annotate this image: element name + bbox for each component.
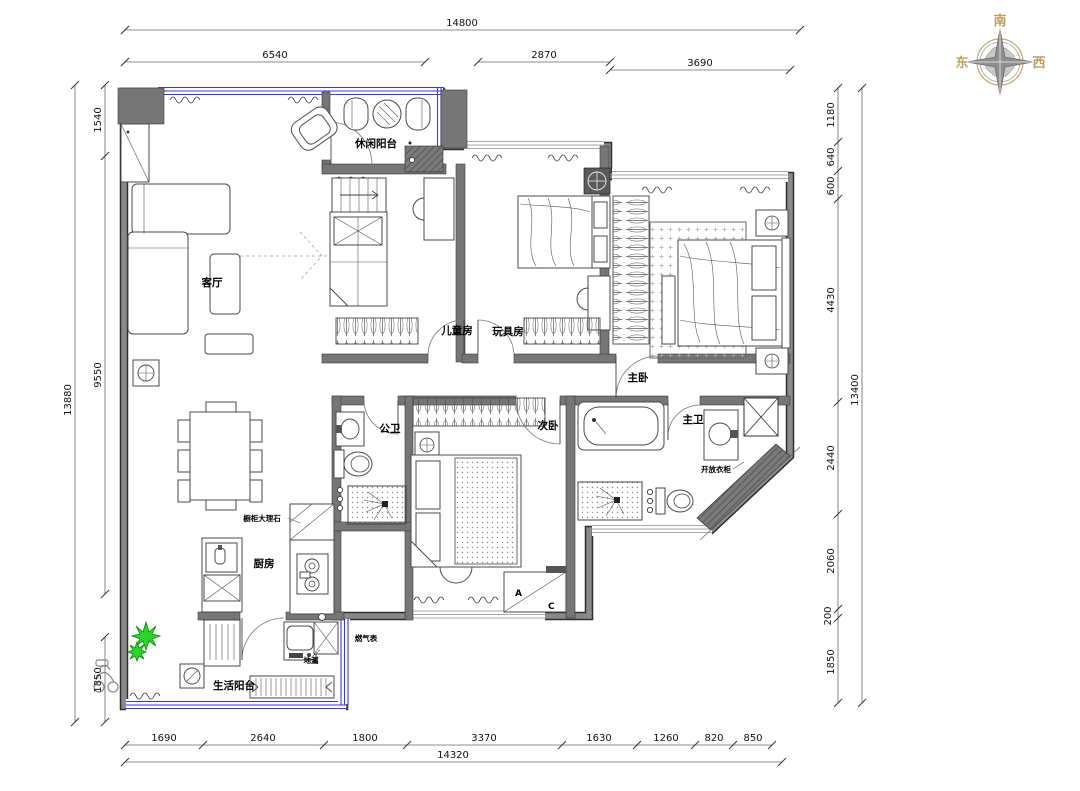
tv-board: [662, 276, 675, 344]
bathtub: [578, 402, 664, 450]
label-public-bathroom: 公卫: [380, 423, 401, 435]
label-gas-meter: 燃气表: [355, 633, 378, 643]
dim-top-seg0: 6540: [262, 50, 287, 61]
dim-left-seg1: 9550: [93, 362, 104, 387]
side-table: [205, 334, 253, 354]
dim-right-overall: 13400: [850, 374, 861, 406]
compass-west-label: 西: [1032, 56, 1045, 71]
dim-left-overall: 13880: [63, 384, 74, 416]
label-toy-room: 玩具房: [492, 325, 524, 338]
kids-desk: [424, 178, 454, 240]
label-service-balcony: 生活阳台: [213, 679, 255, 692]
balcony-chair: [344, 98, 368, 130]
dim-right-seg6: 200: [823, 606, 834, 625]
shower: [578, 482, 642, 520]
dim-bottom-seg2: 1800: [352, 733, 377, 744]
dim-bottom-overall: 14320: [437, 750, 469, 761]
toilet: [334, 450, 372, 478]
bath-sink: [336, 412, 364, 446]
label-leisure-balcony: 休闲阳台: [354, 137, 397, 150]
dim-right-seg0: 1180: [826, 102, 837, 127]
ac-unit: A C: [504, 566, 566, 612]
compass-east-label: 东: [955, 55, 968, 71]
dim-right-seg2: 600: [826, 176, 837, 195]
label-master-bathroom: 主卫: [683, 413, 704, 426]
second-bed: [411, 455, 521, 567]
floor-plan-drawing: A C: [0, 0, 1080, 791]
master-wardrobe: [613, 196, 649, 344]
second-wardrobe: [413, 398, 545, 426]
shower: [348, 486, 406, 524]
dim-right-seg3: 4430: [826, 287, 837, 312]
dim-top-overall: 14800: [446, 18, 478, 29]
nightstand: [756, 348, 788, 374]
master-window: [612, 169, 788, 182]
dim-bottom-seg4: 1630: [586, 733, 611, 744]
master-bed: [678, 238, 790, 348]
label-floor-drain: 地漏: [304, 655, 319, 665]
bath-sink: [704, 410, 738, 460]
ac-letter-c: C: [548, 602, 555, 612]
dining-table: [178, 402, 262, 510]
dim-bottom-seg1: 2640: [250, 733, 275, 744]
dim-left-seg0: 1540: [93, 107, 104, 132]
leisure-balcony: [344, 98, 430, 130]
dim-top-seg1: 2870: [531, 50, 556, 61]
utility-box: [180, 664, 204, 688]
dim-left-seg2: 1850: [93, 667, 104, 692]
floor-outlet-icon: [133, 360, 159, 386]
label-open-wardrobe: 开放衣柜: [701, 464, 731, 474]
dim-top-seg2: 3690: [687, 58, 712, 69]
label-living: 客厅: [201, 276, 223, 289]
toy-bed: [518, 196, 610, 268]
dim-bottom-seg6: 820: [704, 733, 723, 744]
sofa-chaise: [132, 184, 230, 234]
drying-rack: [250, 676, 334, 698]
kitchen-sink: [204, 575, 240, 601]
stove: [297, 554, 328, 594]
floorplan-page: A C: [0, 0, 1080, 791]
dim-bottom-seg7: 850: [743, 733, 762, 744]
toilet: [656, 488, 693, 514]
dim-right-seg1: 640: [826, 147, 837, 166]
dim-bottom-seg0: 1690: [151, 733, 176, 744]
label-cabinet-marble: 橱柜大理石: [242, 513, 281, 523]
corner-column: [118, 88, 164, 124]
dim-right-seg4: 2440: [826, 445, 837, 470]
tall-cabinet: [290, 504, 334, 540]
fridge: [206, 543, 237, 572]
master-bath-window: [592, 523, 712, 536]
sofa: [128, 232, 188, 334]
nightstand: [756, 210, 788, 236]
fan-unit-icon: [584, 168, 610, 194]
dim-bottom-seg3: 3370: [471, 733, 496, 744]
label-master-bedroom: 主卧: [628, 371, 649, 384]
balcony-chair: [406, 98, 430, 130]
kids-wardrobe: [336, 318, 418, 344]
toy-room-window: [464, 139, 604, 152]
compass-rose-icon: 南 东 西: [955, 13, 1045, 96]
label-kitchen: 厨房: [254, 557, 275, 570]
washing-machine: [284, 622, 316, 660]
kids-bed: [330, 212, 387, 306]
dim-right-seg7: 1850: [826, 649, 837, 674]
ac-letter-a: A: [515, 589, 522, 599]
label-second-bedroom: 次卧: [538, 419, 559, 432]
dim-bottom-seg5: 1260: [653, 733, 678, 744]
dim-right-seg5: 2060: [826, 548, 837, 573]
planter-box: [415, 432, 439, 458]
compass-south-label: 南: [993, 13, 1006, 29]
label-kids-room: 儿童房: [440, 324, 473, 337]
toy-wardrobe: [524, 318, 600, 344]
